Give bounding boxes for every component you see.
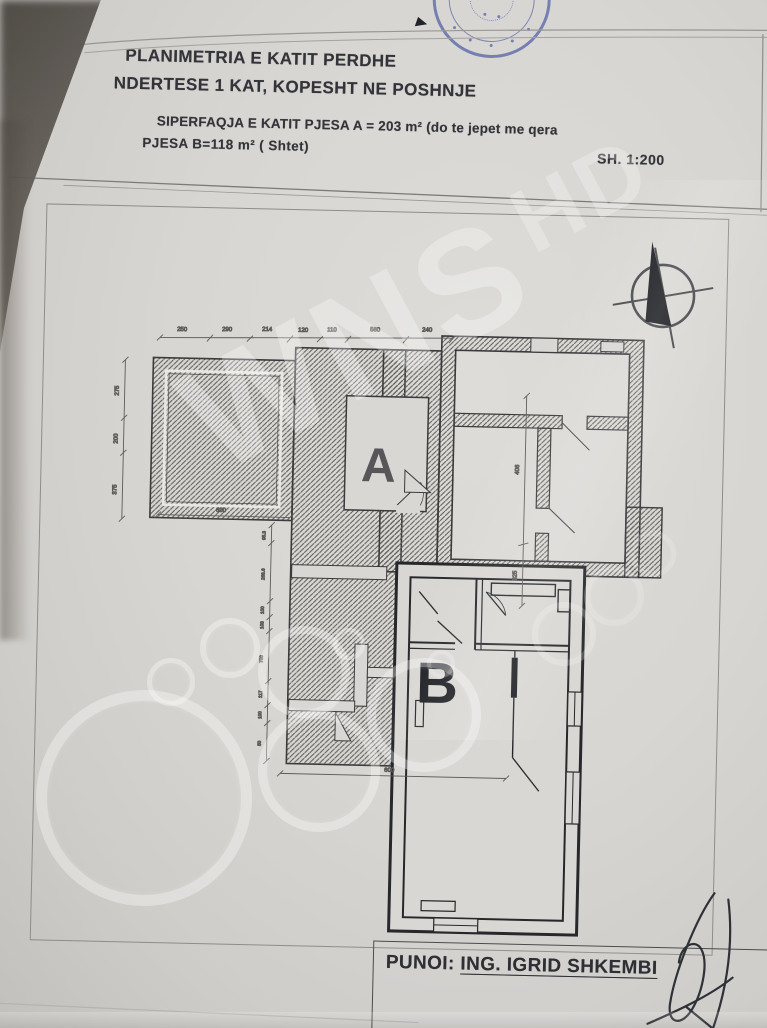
svg-text:375: 375 [112, 484, 118, 495]
svg-text:95.3: 95.3 [261, 531, 266, 540]
svg-text:117: 117 [258, 690, 263, 698]
author-label: PUNOI: [386, 952, 455, 975]
photo-left-shadow [0, 120, 30, 640]
author-name: ING. IGRID SHKEMBI [460, 954, 658, 979]
signature [633, 883, 766, 1028]
part-a-left-room [150, 357, 296, 520]
svg-text:268.6: 268.6 [260, 568, 265, 580]
svg-text:110: 110 [327, 327, 337, 333]
svg-text:103: 103 [259, 621, 264, 629]
svg-text:200: 200 [114, 433, 120, 444]
svg-text:100: 100 [260, 606, 265, 614]
paper-sheen [347, 180, 767, 740]
svg-text:700: 700 [259, 655, 264, 663]
photographed-document: PLANIMETRIA E KATIT PERDHE NDERTESE 1 KA… [0, 0, 767, 1028]
svg-text:275: 275 [115, 385, 121, 396]
svg-text:100: 100 [257, 711, 262, 719]
paper-edge-lines [80, 15, 767, 69]
svg-text:600: 600 [384, 768, 395, 774]
svg-text:50: 50 [257, 740, 262, 746]
paper-bottom-edge [0, 1012, 767, 1028]
svg-text:250: 250 [177, 327, 188, 333]
svg-text:290: 290 [222, 327, 233, 333]
svg-text:120: 120 [298, 328, 309, 334]
svg-text:214: 214 [262, 327, 273, 333]
svg-text:600: 600 [216, 508, 227, 514]
